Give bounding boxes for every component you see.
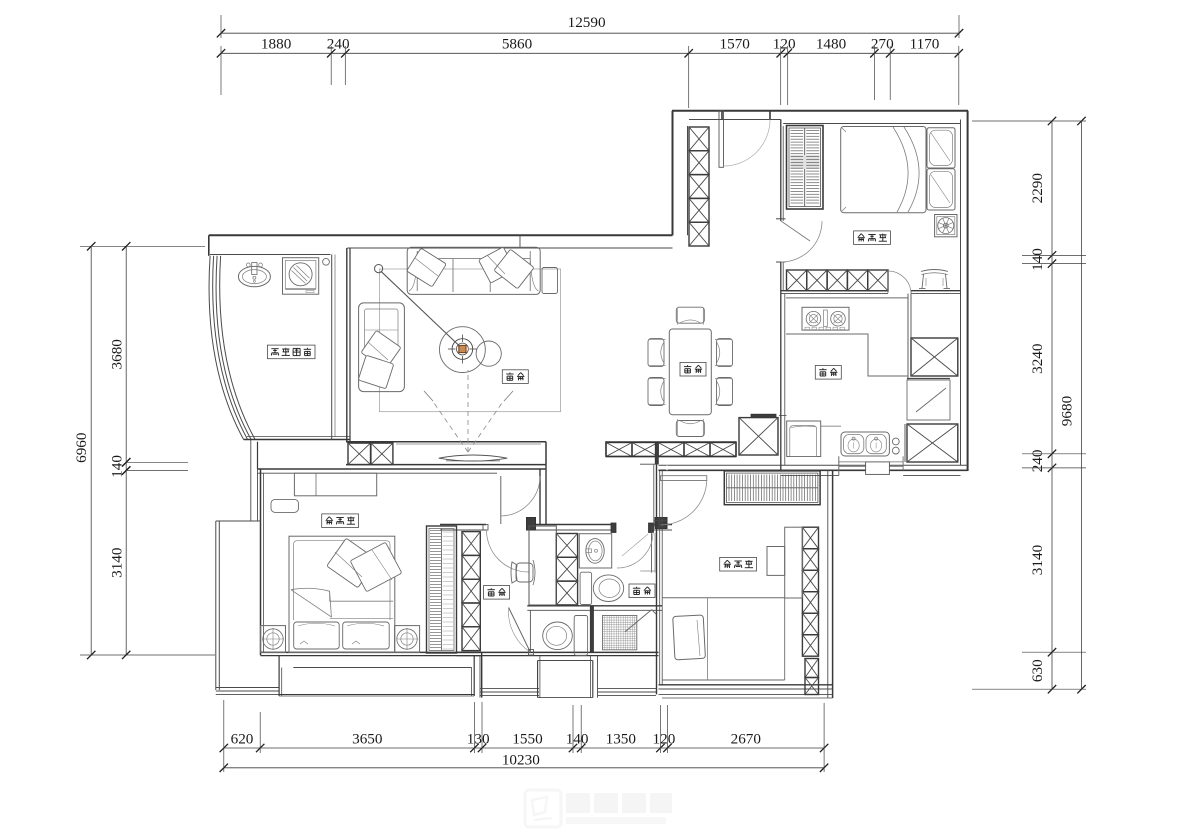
svg-text:10230: 10230 bbox=[502, 752, 540, 769]
svg-text:3140: 3140 bbox=[1029, 544, 1046, 575]
svg-text:130: 130 bbox=[467, 731, 490, 748]
svg-text:140: 140 bbox=[1029, 248, 1046, 271]
svg-text:630: 630 bbox=[1029, 659, 1046, 682]
svg-text:6960: 6960 bbox=[73, 432, 90, 463]
svg-text:140: 140 bbox=[566, 731, 589, 748]
svg-text:3140: 3140 bbox=[109, 547, 126, 578]
svg-text:1480: 1480 bbox=[816, 36, 847, 53]
svg-text:120: 120 bbox=[653, 731, 676, 748]
svg-text:1170: 1170 bbox=[910, 36, 940, 53]
svg-text:1550: 1550 bbox=[512, 731, 543, 748]
svg-text:3650: 3650 bbox=[352, 731, 383, 748]
svg-text:1570: 1570 bbox=[720, 36, 751, 53]
svg-text:9680: 9680 bbox=[1059, 395, 1076, 426]
svg-text:240: 240 bbox=[1029, 449, 1046, 472]
svg-text:620: 620 bbox=[231, 731, 254, 748]
svg-text:3680: 3680 bbox=[109, 339, 126, 370]
svg-text:2290: 2290 bbox=[1029, 173, 1046, 204]
svg-text:240: 240 bbox=[327, 36, 350, 53]
svg-text:1880: 1880 bbox=[261, 36, 292, 53]
svg-text:1350: 1350 bbox=[606, 731, 637, 748]
svg-text:120: 120 bbox=[773, 36, 796, 53]
svg-text:5860: 5860 bbox=[502, 36, 533, 53]
svg-text:3240: 3240 bbox=[1029, 343, 1046, 374]
svg-text:2670: 2670 bbox=[731, 731, 762, 748]
svg-text:12590: 12590 bbox=[568, 14, 606, 31]
